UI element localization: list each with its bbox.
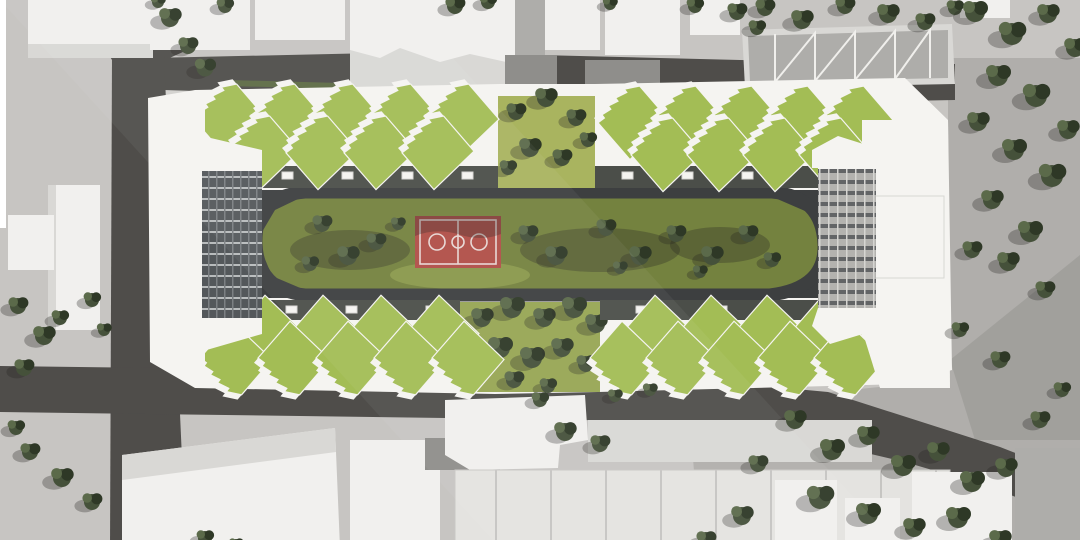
building [545, 0, 600, 50]
building [605, 0, 680, 55]
frame-left [0, 0, 6, 228]
aerial-render [0, 0, 1080, 548]
tower-parapet [818, 162, 876, 169]
east-tower-facade [818, 168, 876, 308]
east-flat-roof [874, 196, 944, 278]
render-canvas [0, 0, 1080, 548]
building-gray [1015, 448, 1080, 548]
building-tall-west [56, 185, 100, 330]
building [8, 215, 54, 270]
building-long-roof [748, 30, 948, 82]
